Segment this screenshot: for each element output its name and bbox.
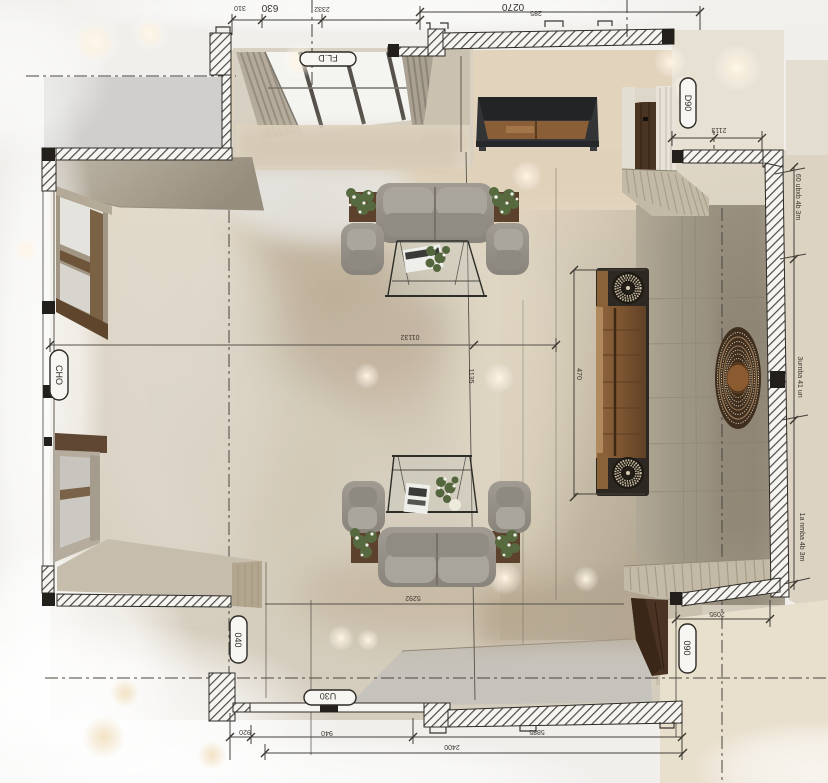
svg-text:01132: 01132 — [400, 333, 419, 340]
svg-text:0270: 0270 — [501, 1, 524, 12]
svg-text:U30: U30 — [320, 691, 337, 701]
svg-text:090: 090 — [682, 640, 692, 655]
svg-text:630: 630 — [261, 2, 278, 13]
svg-text:040: 040 — [233, 632, 243, 647]
svg-text:5292: 5292 — [405, 594, 421, 601]
svg-text:FL.D: FL.D — [318, 53, 338, 63]
svg-text:CHO: CHO — [54, 365, 64, 385]
svg-text:60 ubxb 4b 3m: 60 ubxb 4b 3m — [794, 174, 801, 220]
svg-text:2095: 2095 — [709, 610, 725, 617]
svg-text:940: 940 — [321, 729, 333, 736]
svg-text:285: 285 — [530, 9, 542, 16]
svg-text:3urnba 41 un: 3urnba 41 un — [796, 356, 803, 397]
svg-text:470: 470 — [575, 368, 582, 380]
svg-text:5885: 5885 — [529, 728, 545, 735]
svg-text:920: 920 — [239, 728, 251, 735]
svg-text:1a nmba 4b 3m: 1a nmba 4b 3m — [798, 513, 805, 562]
svg-text:2332: 2332 — [314, 5, 330, 12]
svg-text:2400: 2400 — [444, 743, 460, 750]
svg-text:1135: 1135 — [467, 368, 474, 383]
svg-text:2113: 2113 — [711, 126, 726, 133]
svg-text:D90: D90 — [683, 95, 693, 112]
svg-text:310: 310 — [234, 4, 246, 11]
